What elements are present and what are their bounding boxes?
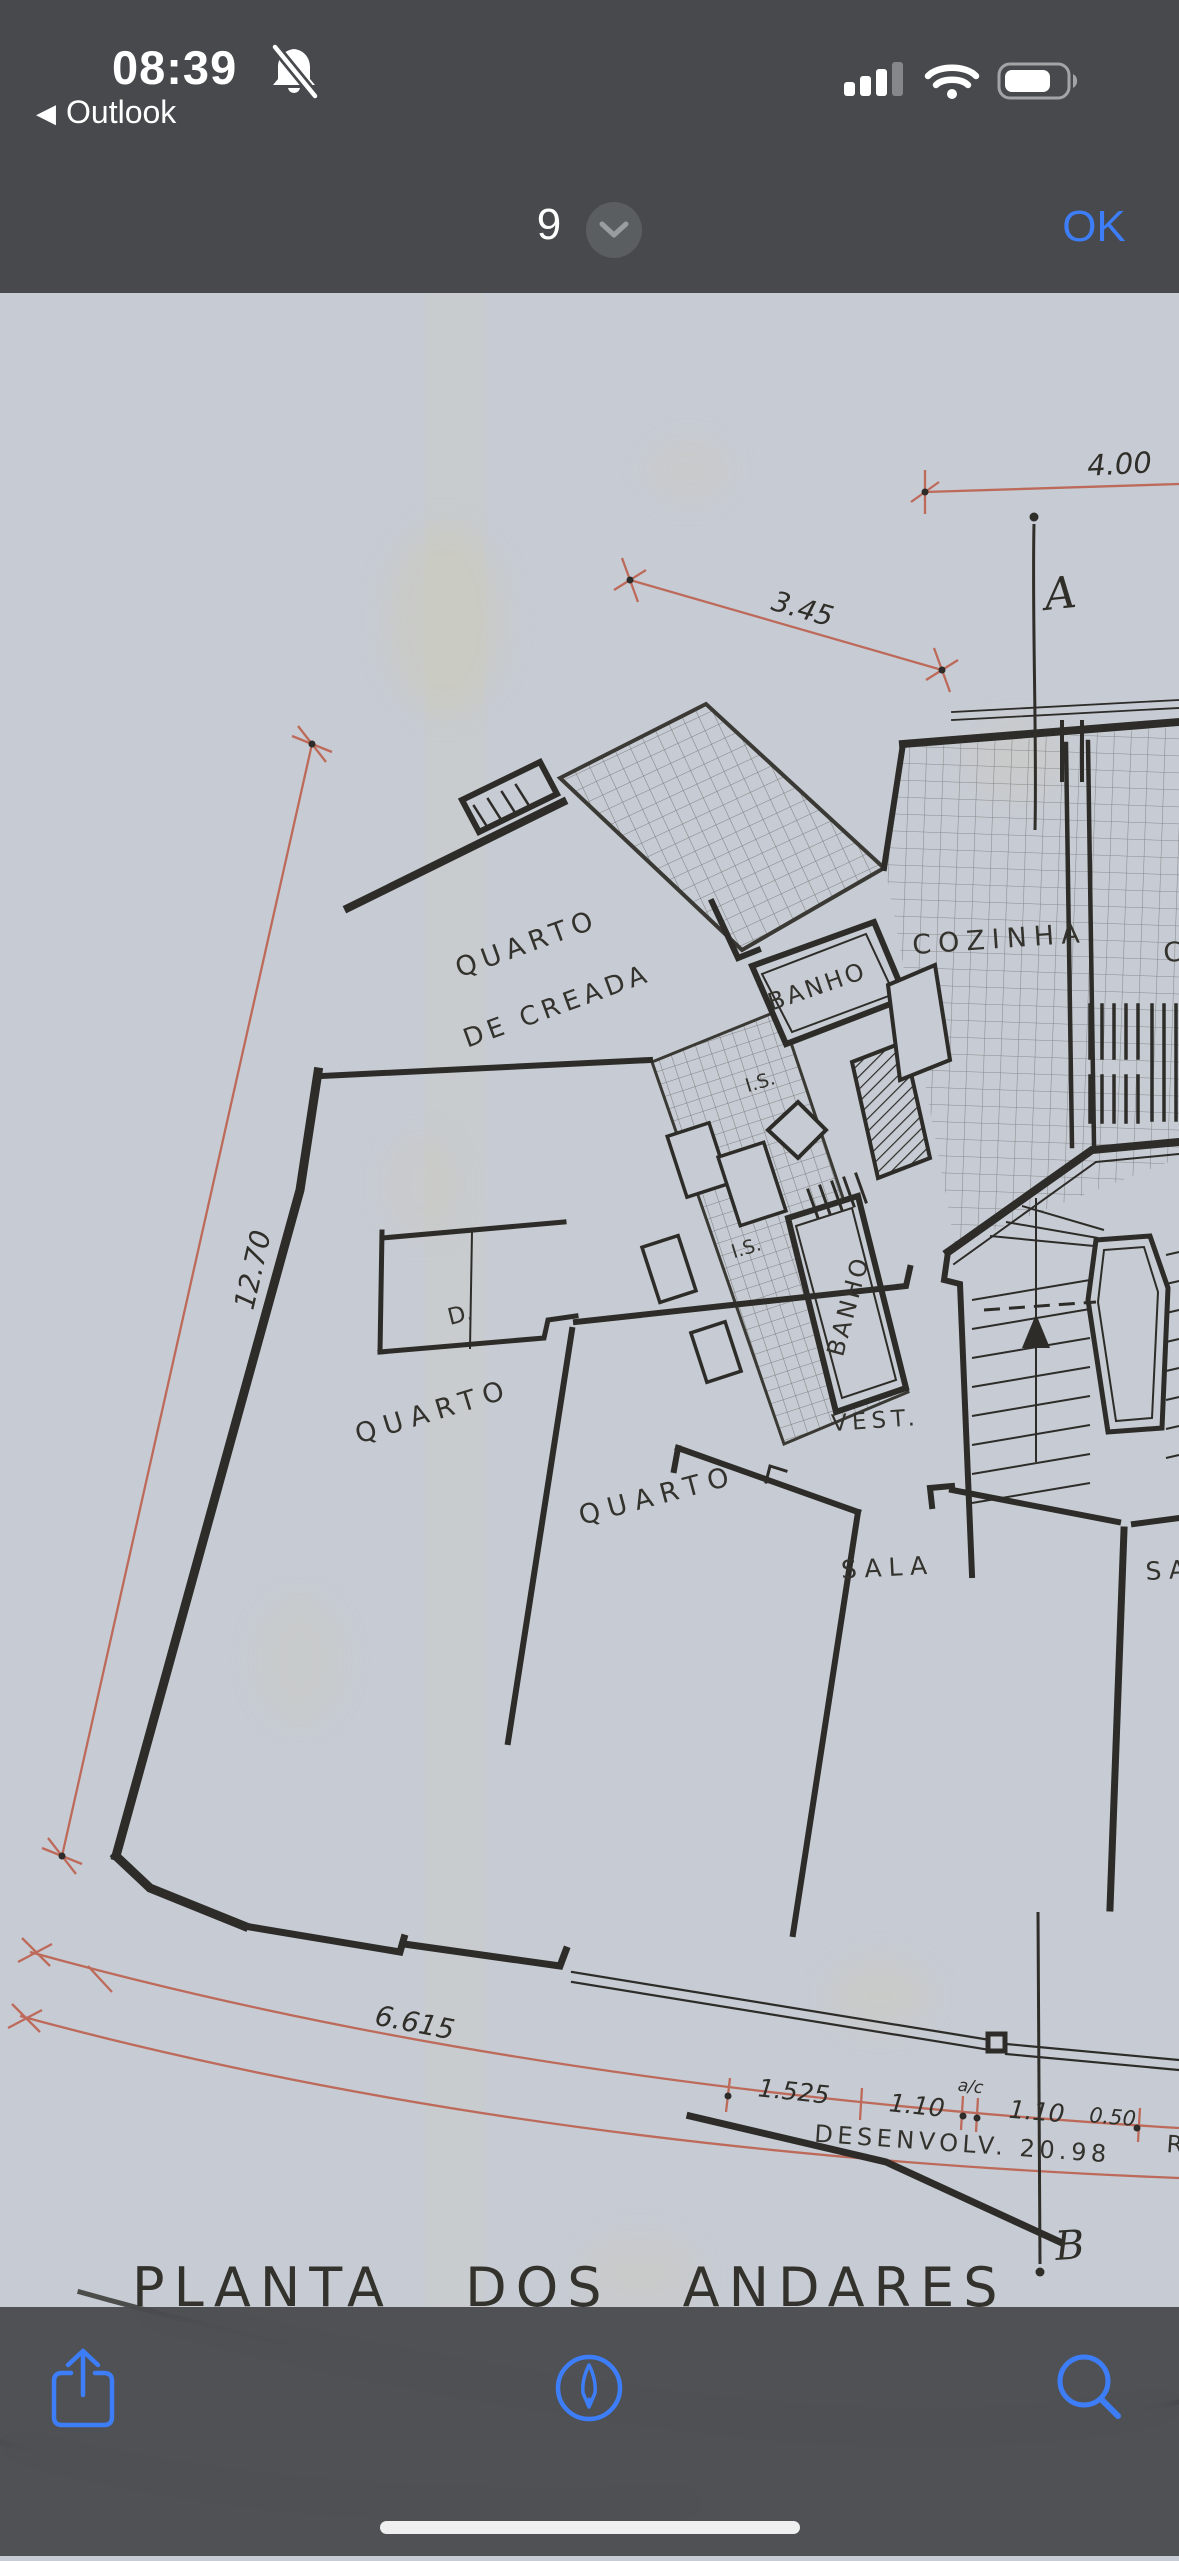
- status-icons: [836, 56, 1096, 112]
- share-button[interactable]: [38, 2343, 128, 2433]
- markup-pen-icon: [558, 2357, 620, 2419]
- share-icon: [54, 2351, 112, 2425]
- dim-note-ac: a/c: [957, 2076, 985, 2099]
- ok-button[interactable]: OK: [1052, 202, 1136, 252]
- chevron-down-icon: [599, 220, 629, 240]
- dim-1-10b: 1.10: [1008, 2095, 1066, 2129]
- status-nav-header: 08:39 ◀ Outlook 9 OK: [0, 0, 1179, 293]
- room-label-kitchen2: CO: [1162, 934, 1179, 969]
- dim-4-00: 4.00: [1086, 445, 1152, 482]
- section-label-b: B: [1052, 2222, 1086, 2270]
- viewer-toolbar: [0, 2307, 1179, 2556]
- room-label-living: SALA: [840, 1551, 934, 1585]
- markup-button[interactable]: [544, 2343, 634, 2433]
- dim-0-50: 0.50: [1088, 2103, 1137, 2131]
- home-indicator[interactable]: [380, 2521, 800, 2534]
- page-selector-button[interactable]: [586, 202, 642, 258]
- search-button[interactable]: [1044, 2343, 1134, 2433]
- back-app-label: Outlook: [66, 94, 176, 131]
- battery-icon: [999, 64, 1077, 98]
- dim-partial-right: R: [1166, 2130, 1179, 2159]
- room-label-living2: SA: [1145, 1555, 1179, 1586]
- clock-time: 08:39: [112, 40, 237, 95]
- search-icon: [1060, 2357, 1118, 2416]
- page-number-indicator: 9: [520, 200, 578, 250]
- back-chevron-icon: ◀: [36, 100, 56, 126]
- dim-1-10a: 1.10: [888, 2088, 946, 2123]
- wifi-icon: [928, 68, 976, 99]
- cellular-signal-icon: [844, 62, 903, 96]
- notifications-muted-icon: [268, 44, 320, 100]
- back-to-app-button[interactable]: ◀ Outlook: [36, 94, 176, 131]
- document-viewer[interactable]: A B QUARTO DE CREADA COZINHA CO BANHO BA…: [0, 293, 1179, 2556]
- floorplan-canvas[interactable]: A B QUARTO DE CREADA COZINHA CO BANHO BA…: [0, 293, 1179, 2556]
